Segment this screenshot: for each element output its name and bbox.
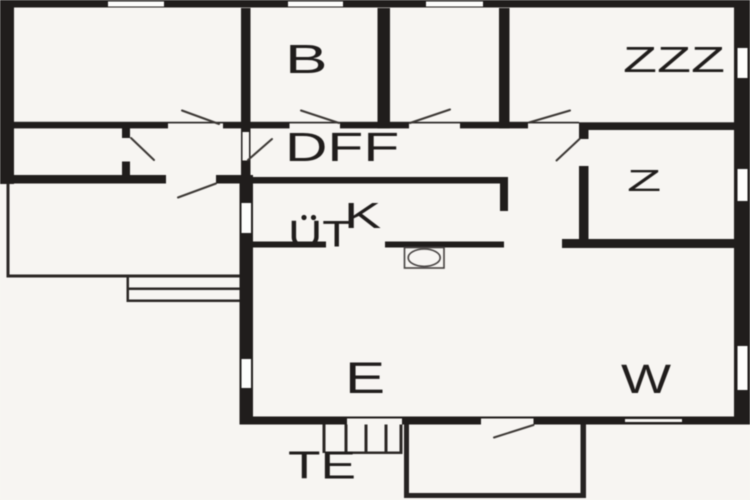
svg-text:DFF: DFF bbox=[285, 124, 399, 170]
svg-text:W: W bbox=[621, 356, 672, 402]
svg-text:Z: Z bbox=[627, 163, 661, 198]
svg-text:ZZZ: ZZZ bbox=[623, 39, 725, 80]
svg-text:UT: UT bbox=[288, 214, 351, 255]
svg-text:TE: TE bbox=[288, 445, 356, 488]
svg-text:E: E bbox=[345, 354, 385, 403]
svg-text:B: B bbox=[285, 36, 328, 82]
